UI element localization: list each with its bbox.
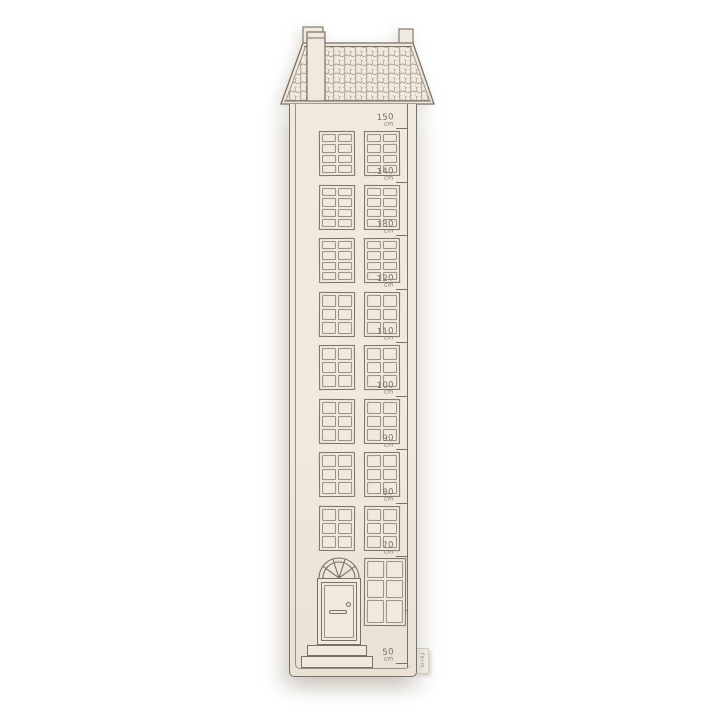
window-pane xyxy=(338,144,352,152)
ruler-tick xyxy=(396,235,408,236)
window-panes xyxy=(322,187,352,226)
ruler-mark: 80cm xyxy=(364,488,395,504)
window-pane xyxy=(386,580,403,597)
window-pane xyxy=(322,294,336,306)
window-pane xyxy=(383,144,397,152)
door-step-lower xyxy=(301,656,373,668)
window-pane xyxy=(383,415,397,427)
window-pane xyxy=(322,469,336,481)
window-pane xyxy=(367,241,381,249)
window-pane xyxy=(367,262,381,270)
window-pane xyxy=(338,241,352,249)
window-pane xyxy=(338,308,352,320)
window-pane xyxy=(367,455,381,467)
ruler-tick xyxy=(396,289,408,290)
ground-floor-window xyxy=(364,558,406,626)
window-pane xyxy=(322,322,336,334)
window-pane xyxy=(383,348,397,360)
window-pane xyxy=(383,261,397,269)
window-pane xyxy=(338,188,352,196)
window-pane xyxy=(322,415,336,427)
window-pane xyxy=(338,218,352,226)
ruler-tick xyxy=(396,663,408,664)
window-pane xyxy=(338,402,352,414)
window-row xyxy=(290,131,416,176)
window-row xyxy=(290,452,416,497)
window-left xyxy=(319,238,355,283)
window-row xyxy=(290,185,416,230)
window-left xyxy=(319,345,355,390)
window-pane xyxy=(322,536,336,548)
window-pane xyxy=(322,187,336,195)
window-pane xyxy=(322,144,336,152)
window-pane xyxy=(383,198,397,206)
window-pane xyxy=(322,508,336,520)
window-pane xyxy=(367,522,381,534)
window-pane xyxy=(383,295,397,307)
height-unit: cm xyxy=(364,549,394,557)
window-pane xyxy=(383,188,397,196)
window-row xyxy=(290,399,416,444)
window-pane xyxy=(367,308,381,320)
window-pane xyxy=(322,262,336,270)
window-pane xyxy=(322,134,336,142)
ruler-mark: 70cm xyxy=(364,541,395,557)
window-pane xyxy=(383,362,397,374)
window-pane xyxy=(322,155,336,163)
ruler-mark: 100cm xyxy=(364,381,395,397)
window-pane xyxy=(383,251,397,259)
window-pane xyxy=(383,509,397,521)
window-pane xyxy=(322,455,336,467)
ruler-mark: 90cm xyxy=(364,434,395,450)
window-pane xyxy=(367,134,381,142)
window-pane xyxy=(367,561,384,578)
window-pane xyxy=(338,522,352,534)
window-pane xyxy=(338,134,352,142)
window-pane xyxy=(322,218,336,226)
window-pane xyxy=(367,508,381,520)
letter-slot-icon xyxy=(329,610,347,614)
window-pane xyxy=(367,362,381,374)
window-pane xyxy=(338,509,352,521)
window-panes xyxy=(322,508,352,547)
height-unit: cm xyxy=(364,496,394,504)
window-pane xyxy=(322,272,336,280)
window-pane xyxy=(383,241,397,249)
window-pane xyxy=(383,208,397,216)
ruler-mark: 140cm xyxy=(364,167,395,183)
window-row xyxy=(290,345,416,390)
window-left xyxy=(319,291,355,336)
window-panes xyxy=(322,401,352,440)
window-pane xyxy=(386,561,403,578)
brand-tag-label: ferm xyxy=(419,653,425,669)
window-left xyxy=(319,398,355,443)
doorknob-icon xyxy=(346,602,351,607)
window-pane xyxy=(322,401,336,413)
ruler-mark: 110cm xyxy=(364,327,395,343)
height-unit: cm xyxy=(364,442,394,450)
chimney-icon xyxy=(307,32,325,101)
window-pane xyxy=(338,536,352,548)
ruler-tick xyxy=(396,556,408,557)
window-pane xyxy=(338,455,352,467)
door-frame xyxy=(317,578,361,645)
window-pane xyxy=(338,208,352,216)
window-pane xyxy=(386,600,403,623)
house-facade: 150cm140cm130cm120cm110cm100cm90cm80cm70… xyxy=(289,104,417,677)
window-row xyxy=(290,238,416,283)
window-pane xyxy=(322,208,336,216)
window-pane xyxy=(322,362,336,374)
ruler-tick xyxy=(396,182,408,183)
window-pane xyxy=(338,295,352,307)
window-panes xyxy=(322,294,352,333)
window-pane xyxy=(338,429,352,441)
ruler-mark: 130cm xyxy=(364,220,395,236)
window-pane xyxy=(322,198,336,206)
ruler-tick xyxy=(396,342,408,343)
window-pane xyxy=(367,401,381,413)
window-row xyxy=(290,506,416,551)
window-pane xyxy=(338,322,352,334)
window-pane xyxy=(322,348,336,360)
window-pane xyxy=(367,198,381,206)
ruler-tick xyxy=(396,449,408,450)
window-pane xyxy=(383,469,397,481)
window-pane xyxy=(367,600,384,623)
product-photo-background: ferm 150cm140cm130cm120cm110cm100cm90cm8… xyxy=(0,0,720,720)
door-fanlight-icon xyxy=(317,556,361,578)
window-panes xyxy=(322,348,352,387)
window-pane xyxy=(322,165,336,173)
window-pane xyxy=(338,469,352,481)
window-pane xyxy=(367,348,381,360)
window-left xyxy=(319,184,355,229)
window-pane xyxy=(383,308,397,320)
window-row xyxy=(290,292,416,337)
window-pane xyxy=(367,469,381,481)
ruler-mark: 120cm xyxy=(364,274,395,290)
window-pane xyxy=(338,482,352,494)
window-left xyxy=(319,452,355,497)
window-panes xyxy=(322,455,352,494)
window-pane xyxy=(367,155,381,163)
window-pane xyxy=(322,241,336,249)
window-pane xyxy=(367,415,381,427)
ruler-tick xyxy=(396,128,408,129)
window-pane xyxy=(322,375,336,387)
window-pane xyxy=(322,522,336,534)
ruler-mark: 150cm xyxy=(364,113,395,129)
door-step-upper xyxy=(307,645,367,656)
window-pane xyxy=(367,144,381,152)
window-panes xyxy=(322,134,352,173)
window-pane xyxy=(338,348,352,360)
growth-chart-fabric-house: ferm 150cm140cm130cm120cm110cm100cm90cm8… xyxy=(273,24,437,680)
window-pane xyxy=(338,154,352,162)
window-pane xyxy=(383,154,397,162)
window-left xyxy=(319,131,355,176)
window-pane xyxy=(338,415,352,427)
window-pane xyxy=(383,522,397,534)
window-pane xyxy=(322,251,336,259)
window-panes xyxy=(322,241,352,280)
window-pane xyxy=(338,165,352,173)
window-pane xyxy=(338,375,352,387)
window-pane xyxy=(322,308,336,320)
window-pane xyxy=(367,294,381,306)
window-pane xyxy=(383,134,397,142)
roof xyxy=(273,24,437,106)
window-pane xyxy=(367,251,381,259)
window-pane xyxy=(338,198,352,206)
ruler-tick xyxy=(396,503,408,504)
ruler-tick xyxy=(396,396,408,397)
front-door xyxy=(321,582,357,641)
window-left xyxy=(319,505,355,550)
window-pane xyxy=(367,187,381,195)
window-pane xyxy=(322,482,336,494)
window-pane xyxy=(383,402,397,414)
window-pane xyxy=(322,429,336,441)
window-pane xyxy=(383,455,397,467)
window-pane xyxy=(338,261,352,269)
window-pane xyxy=(338,272,352,280)
window-pane xyxy=(367,208,381,216)
window-pane xyxy=(338,251,352,259)
window-pane xyxy=(338,362,352,374)
window-pane xyxy=(367,580,384,597)
window-panes xyxy=(367,561,403,623)
